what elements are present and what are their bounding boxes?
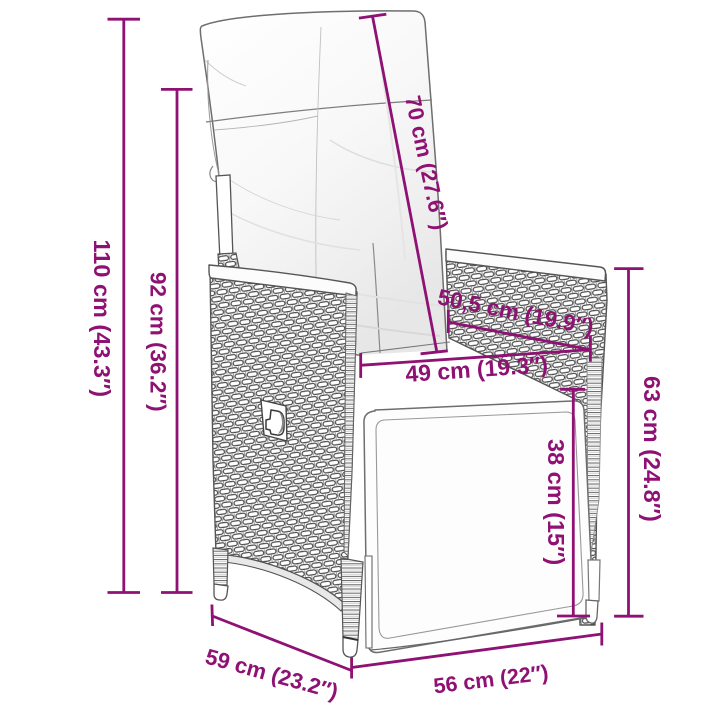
svg-text:92 cm (36.2″): 92 cm (36.2″) (146, 272, 171, 412)
svg-text:110 cm (43.3″): 110 cm (43.3″) (89, 240, 115, 398)
svg-text:38 cm (15″): 38 cm (15″) (543, 439, 569, 565)
svg-text:63 cm (24.8″): 63 cm (24.8″) (639, 376, 665, 522)
